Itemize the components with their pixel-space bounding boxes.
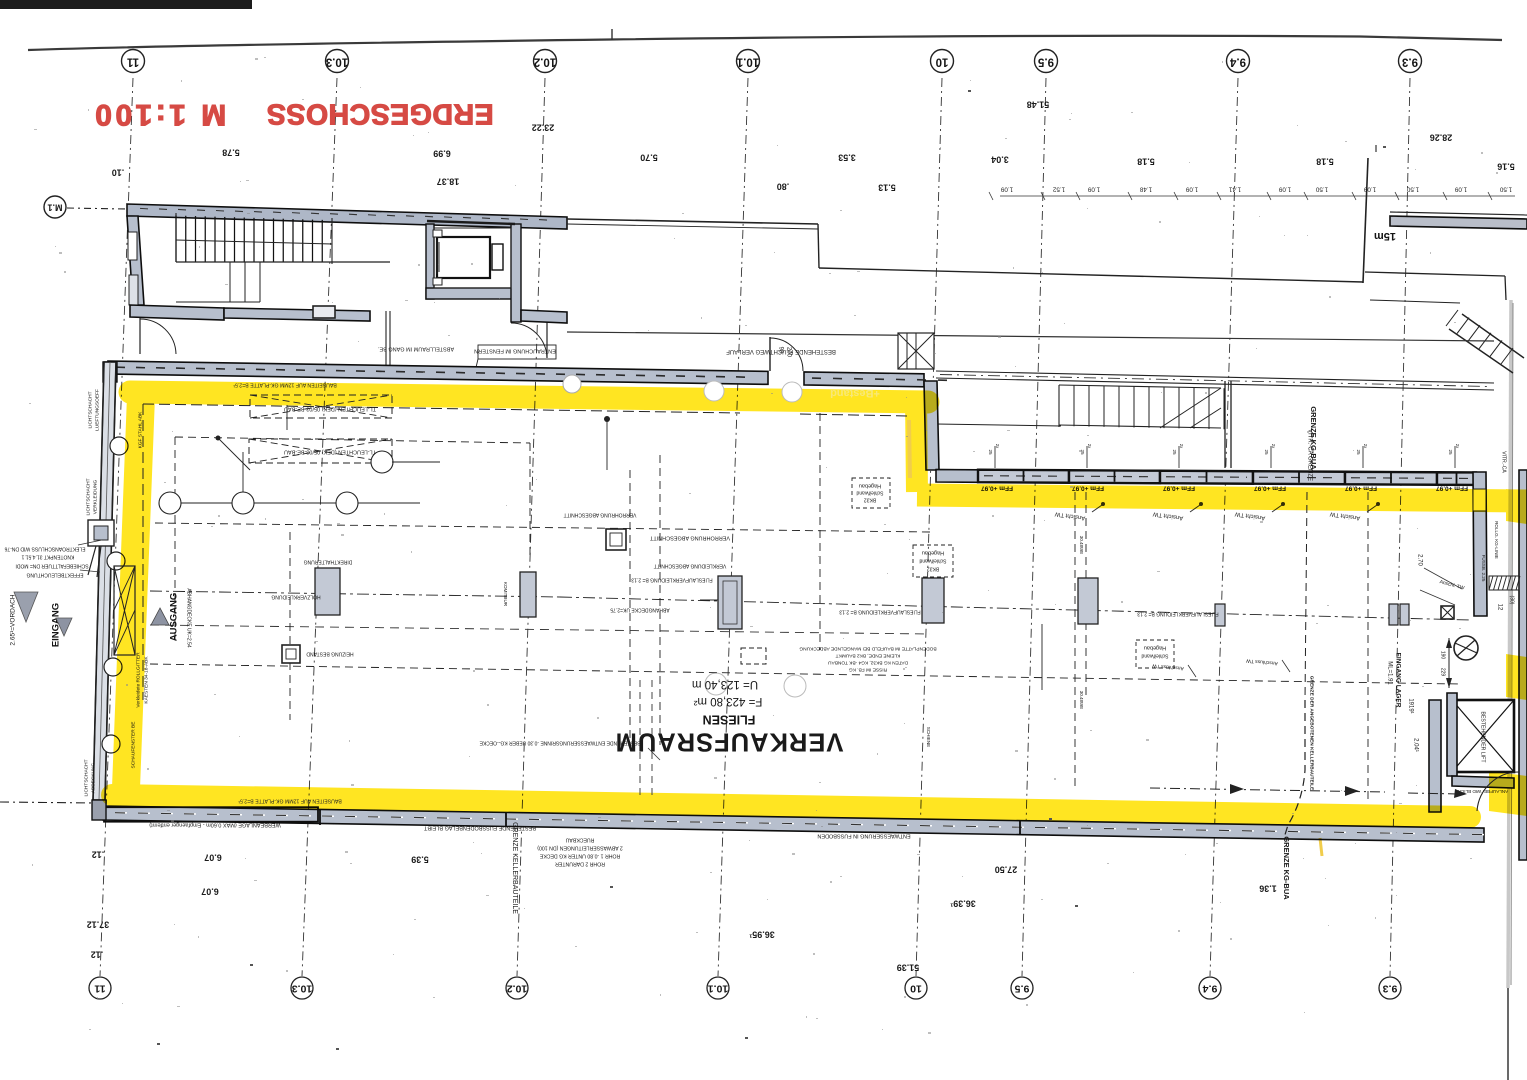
svg-text:BODENPLATTE IM BAUFELD BEI MAN: BODENPLATTE IM BAUFELD BEI MANGELNDE ABD… xyxy=(799,646,936,652)
svg-text:5.70: 5.70 xyxy=(640,153,658,163)
svg-text:GRENZE KELLERBAUTEILE: GRENZE KELLERBAUTEILE xyxy=(511,822,518,914)
svg-text:Hagebau: Hagebau xyxy=(922,550,944,556)
svg-text:Schleifwand: Schleifwand xyxy=(856,490,883,496)
svg-text:ELEKTROANSCHLUSS WID DN-76: ELEKTROANSCHLUSS WID DN-76 xyxy=(4,546,85,552)
svg-text:M.1: M.1 xyxy=(47,203,62,213)
svg-text:5.13: 5.13 xyxy=(878,183,896,193)
svg-text:EINGANG LAGER: EINGANG LAGER xyxy=(1394,653,1401,708)
svg-text:18.37: 18.37 xyxy=(437,177,460,187)
svg-text:HOLZVERKLEIDUNG: HOLZVERKLEIDUNG xyxy=(271,594,320,600)
svg-text:9.3: 9.3 xyxy=(1402,55,1418,67)
svg-text:10.1: 10.1 xyxy=(736,55,759,67)
svg-text:BK32: BK32 xyxy=(927,566,939,572)
svg-text:1.50: 1.50 xyxy=(1315,185,1328,192)
svg-text:HEIZUNG BESTAND: HEIZUNG BESTAND xyxy=(306,651,354,657)
svg-text:25: 25 xyxy=(1448,449,1453,455)
svg-text:LICHTSCHACHT: LICHTSCHACHT xyxy=(87,391,93,428)
svg-text:ABHANGDECKE UK=2.75: ABHANGDECKE UK=2.75 xyxy=(610,607,670,613)
svg-text:9.5: 9.5 xyxy=(1015,983,1030,995)
svg-text:VITR.-CA GRENZE: VITR.-CA GRENZE xyxy=(1306,429,1312,481)
svg-text:1.09: 1.09 xyxy=(1278,185,1291,192)
svg-text:190: 190 xyxy=(1440,651,1446,660)
svg-text:Schleifwand: Schleifwand xyxy=(919,558,946,564)
svg-text:1.09: 1.09 xyxy=(1363,185,1376,192)
svg-text:VERROHRUNG ABGESCHNITT: VERROHRUNG ABGESCHNITT xyxy=(649,535,730,541)
svg-text:9.4: 9.4 xyxy=(1203,983,1218,995)
svg-text:3.04: 3.04 xyxy=(991,155,1009,165)
svg-text:SCHIENE: SCHIENE xyxy=(926,727,931,747)
svg-text:KAESTEN 34-18-ABK: KAESTEN 34-18-ABK xyxy=(143,656,149,704)
svg-text:U= 123,40 m: U= 123,40 m xyxy=(692,678,758,690)
svg-text:2 ABWASSERLEITUNGEN (DN 100): 2 ABWASSERLEITUNGEN (DN 100) xyxy=(537,845,623,851)
svg-text:ROHR 1 -0.80 UNTER KG DECKE: ROHR 1 -0.80 UNTER KG DECKE xyxy=(539,853,620,859)
svg-text:.12: .12 xyxy=(91,950,104,960)
svg-text:BESTEHENDE FLUCHTWEG VERLAUF: BESTEHENDE FLUCHTWEG VERLAUF xyxy=(726,348,836,354)
svg-text:15m: 15m xyxy=(1374,230,1396,242)
svg-text:5.78: 5.78 xyxy=(222,148,240,158)
svg-text:WERBEANLAGE (MAX 0.60m - Emp: WERBEANLAGE (MAX 0.60m - Empfaenger entf… xyxy=(149,822,281,828)
svg-text:51.39: 51.39 xyxy=(897,963,920,973)
svg-text:M 1:100: M 1:100 xyxy=(92,98,227,131)
svg-text:ROLLG. KG-LINIE: ROLLG. KG-LINIE xyxy=(1494,521,1499,559)
svg-text:11: 11 xyxy=(94,983,105,995)
svg-text:F= 423,80 m²: F= 423,80 m² xyxy=(693,695,762,707)
svg-text:VERKAUFSRAUM: VERKAUFSRAUM xyxy=(615,727,844,755)
svg-text:5.18: 5.18 xyxy=(1316,157,1334,167)
svg-text:ABDECKUNG: ABDECKUNG xyxy=(90,763,96,794)
svg-text:Verkleidete ROLLGITTER: Verkleidete ROLLGITTER xyxy=(135,652,141,708)
svg-text:BAUSEITEN AUF 12MM GK-PLATTE B: BAUSEITEN AUF 12MM GK-PLATTE B=2.5¹ xyxy=(238,798,342,804)
svg-text:25: 25 xyxy=(1356,449,1361,455)
svg-text:DIREKTHALTERUNG: DIREKTHALTERUNG xyxy=(303,559,352,565)
svg-text:1.52: 1.52 xyxy=(1052,185,1065,192)
svg-text:1.09: 1.09 xyxy=(1185,185,1198,192)
svg-text:+Bestand: +Bestand xyxy=(830,387,880,399)
svg-text:TL-LEUCHTEN (DEK) 05/03-BE-BAU: TL-LEUCHTEN (DEK) 05/03-BE-BAU xyxy=(284,449,376,455)
svg-text:229: 229 xyxy=(1440,668,1446,677)
svg-text:9.3: 9.3 xyxy=(1383,983,1398,995)
svg-text:KNOTENPKT 31.4.51.1: KNOTENPKT 31.4.51.1 xyxy=(21,554,74,560)
svg-text:KLEINE ENDE, BK2 BAUMKT: KLEINE ENDE, BK2 BAUMKT xyxy=(836,653,901,659)
svg-text:ABHANGDECKE UK=2.54: ABHANGDECKE UK=2.54 xyxy=(186,588,192,648)
svg-text:6.07: 6.07 xyxy=(204,853,222,863)
svg-text:10.3: 10.3 xyxy=(292,983,313,995)
svg-text:1.09: 1.09 xyxy=(1087,185,1100,192)
svg-text:ROHR 2 DARUNTER: ROHR 2 DARUNTER xyxy=(555,861,605,867)
svg-text:1.48: 1.48 xyxy=(1139,185,1152,192)
svg-text:.10: .10 xyxy=(112,168,125,178)
svg-text:LICHTSCHACHT: LICHTSCHACHT xyxy=(85,478,91,515)
svg-text:10.2: 10.2 xyxy=(507,983,528,995)
svg-text:FUSSB. 2.25: FUSSB. 2.25 xyxy=(1481,555,1486,582)
svg-text:FLIESLAUFVERKLEIDUNG B= 2.13: FLIESLAUFVERKLEIDUNG B= 2.13 xyxy=(631,577,713,583)
svg-text:ABSTELLRAUM IM GANG BE.: ABSTELLRAUM IM GANG BE. xyxy=(377,346,454,352)
svg-text:Hagebau: Hagebau xyxy=(1144,645,1166,651)
svg-text:12: 12 xyxy=(1496,604,1502,611)
svg-text:6.07: 6.07 xyxy=(201,887,219,897)
svg-text:VERKLEIDUNG: VERKLEIDUNG xyxy=(92,480,98,515)
svg-text:KOMITBUR: KOMITBUR xyxy=(503,582,508,607)
svg-text:9.5: 9.5 xyxy=(1037,55,1054,67)
svg-text:11: 11 xyxy=(126,55,139,67)
svg-text:LICHTSCHACHT: LICHTSCHACHT xyxy=(83,759,89,796)
svg-text:SCHAUFENSTER BE: SCHAUFENSTER BE xyxy=(130,722,136,769)
svg-text:5.18: 5.18 xyxy=(1137,157,1155,167)
svg-text:BESTEHENDER LIFT: BESTEHENDER LIFT xyxy=(1480,711,1486,763)
svg-text:Schleifwand: Schleifwand xyxy=(1141,653,1168,659)
svg-text:25: 25 xyxy=(988,449,993,455)
svg-text:ENTRAUCHUNG IM FENSTERN: ENTRAUCHUNG IM FENSTERN xyxy=(474,348,556,354)
svg-text:37.12: 37.12 xyxy=(87,920,110,930)
svg-text:1.09: 1.09 xyxy=(1000,185,1013,192)
svg-text:RUECKBAU: RUECKBAU xyxy=(565,837,594,843)
svg-text:10.2: 10.2 xyxy=(534,55,556,67)
svg-text:FLIESEN: FLIESEN xyxy=(703,713,756,727)
svg-text:BK32: BK32 xyxy=(864,497,876,503)
svg-text:VITR.-CA: VITR.-CA xyxy=(1501,451,1507,473)
svg-text:ERDGESCHOSS: ERDGESCHOSS xyxy=(266,97,493,129)
svg-text:FLIESLAUFVERKLEIDUNG B= 2.13: FLIESLAUFVERKLEIDUNG B= 2.13 xyxy=(839,609,921,615)
svg-text:DATEN KG BK32, KG4 -BK TONBAU: DATEN KG BK32, KG4 -BK TONBAU xyxy=(827,660,908,666)
svg-text:2.65¹=VORDACH: 2.65¹=VORDACH xyxy=(10,594,17,645)
svg-text:10: 10 xyxy=(910,983,922,995)
svg-text:36.95¹: 36.95¹ xyxy=(749,930,775,940)
svg-text:5.39: 5.39 xyxy=(411,855,429,865)
svg-text:10.3: 10.3 xyxy=(326,55,348,67)
svg-text:LUEFTUNGSOEFF: LUEFTUNGSOEFF xyxy=(94,389,100,431)
svg-text:.80: .80 xyxy=(777,182,790,192)
svg-text:25: 25 xyxy=(1264,449,1269,455)
svg-text:3.53: 3.53 xyxy=(838,153,856,163)
svg-text:TL-LEUCHTEN (DEK) 05/03-BE-BAU: TL-LEUCHTEN (DEK) 05/03-BE-BAU xyxy=(284,406,376,412)
svg-text:SCHIEBEFALTTUER DN= MODI: SCHIEBEFALTTUER DN= MODI xyxy=(15,563,88,569)
svg-text:6.99: 6.99 xyxy=(433,149,451,159)
svg-text:25: 25 xyxy=(1172,449,1177,455)
svg-text:51.48: 51.48 xyxy=(1027,100,1050,110)
svg-text:10: 10 xyxy=(936,55,949,67)
svg-text:VERKLEIDUNG ABGESCHNITT: VERKLEIDUNG ABGESCHNITT xyxy=(654,563,727,569)
svg-text:1.36: 1.36 xyxy=(1259,884,1277,894)
svg-text:GRENZE KG-BUA: GRENZE KG-BUA xyxy=(1282,836,1291,900)
svg-text:GRENZE DER ANGEBOTENEN KELLERB: GRENZE DER ANGEBOTENEN KELLERBAUTEILE xyxy=(1309,676,1315,791)
svg-text:9.4: 9.4 xyxy=(1229,55,1246,67)
svg-text:1.41: 1.41 xyxy=(1228,185,1241,192)
svg-text:FLIESLAUFVERKLEIDUNG B= 2.13: FLIESLAUFVERKLEIDUNG B= 2.13 xyxy=(1137,611,1219,617)
svg-text:(30): (30) xyxy=(1509,596,1515,605)
svg-text:10.1: 10.1 xyxy=(708,983,729,995)
svg-text:23.22: 23.22 xyxy=(532,123,555,133)
svg-text:28.26: 28.26 xyxy=(1430,133,1453,143)
svg-text:2.04¹: 2.04¹ xyxy=(1412,738,1418,752)
svg-text:.12: .12 xyxy=(92,850,105,860)
svg-text:ENTWAESSERUNG IN FUSSBODEN: ENTWAESSERUNG IN FUSSBODEN xyxy=(817,833,910,839)
svg-text:30.48WE: 30.48WE xyxy=(1079,536,1084,555)
svg-text:27.50: 27.50 xyxy=(995,865,1018,875)
svg-text:2.70: 2.70 xyxy=(1416,554,1422,566)
svg-text:EFFEKTBELEUCHTUNG: EFFEKTBELEUCHTUNG xyxy=(26,572,83,578)
svg-text:RISSE IM FB. KG: RISSE IM FB. KG xyxy=(849,667,887,673)
svg-text:AUSGANG: AUSGANG xyxy=(169,593,180,642)
svg-text:ML=1.91: ML=1.91 xyxy=(1386,661,1392,685)
svg-text:Hagebau: Hagebau xyxy=(859,483,881,489)
svg-text:36.39¹: 36.39¹ xyxy=(950,899,976,909)
svg-text:5.16: 5.16 xyxy=(1497,162,1515,172)
svg-text:1.50: 1.50 xyxy=(1406,185,1419,192)
svg-text:KGF STAHL ABK: KGF STAHL ABK xyxy=(137,411,143,449)
svg-text:VERROHRUNG ABGESCHNITT: VERROHRUNG ABGESCHNITT xyxy=(564,512,637,518)
svg-text:1919¹: 1919¹ xyxy=(1407,698,1413,713)
svg-text:30.48WE: 30.48WE xyxy=(1079,691,1084,710)
svg-text:1.50: 1.50 xyxy=(1499,185,1512,192)
svg-text:1.09: 1.09 xyxy=(1454,185,1467,192)
svg-text:BAUSEITEN AUF 12MM GK-PLATTE B: BAUSEITEN AUF 12MM GK-PLATTE B=2.5¹ xyxy=(233,382,337,388)
